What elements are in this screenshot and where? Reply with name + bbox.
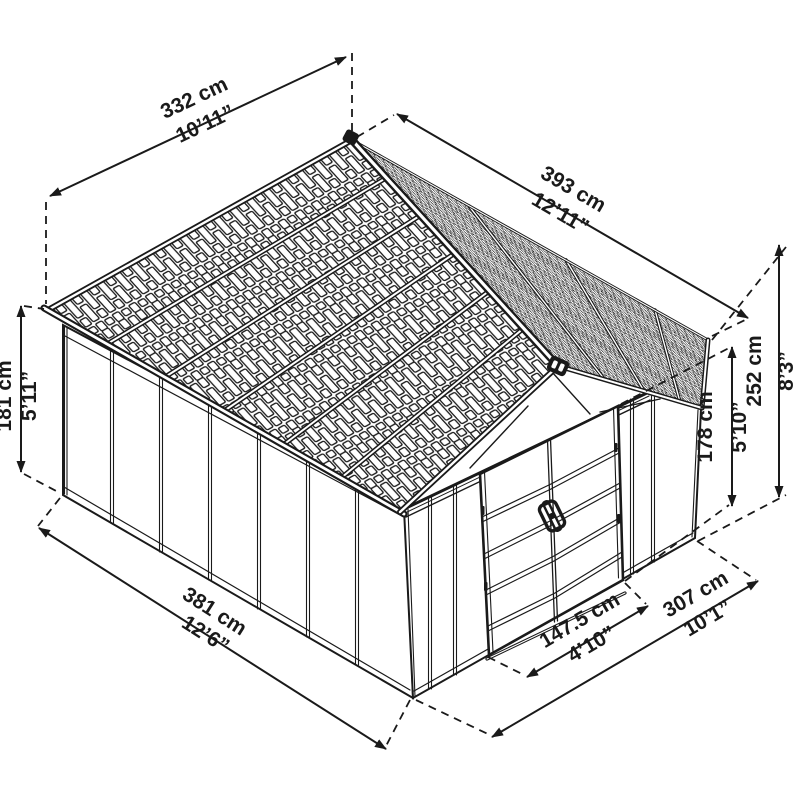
dim-door-height-metric: 178 cm — [694, 391, 717, 462]
dim-wall-height-metric: 181 cm — [0, 360, 16, 431]
dim-wall-height-imperial: 5’11” — [18, 371, 41, 421]
shed-dimension-diagram: 332 cm 10’11” 393 cm 12’11” 181 cm 5’11”… — [0, 0, 800, 800]
dim-total-height-metric: 252 cm — [743, 335, 766, 406]
dim-total-height-imperial: 8’3” — [775, 351, 798, 391]
diagram-svg: 332 cm 10’11” 393 cm 12’11” 181 cm 5’11”… — [0, 0, 800, 800]
dim-door-height-imperial: 5’10” — [728, 401, 751, 452]
